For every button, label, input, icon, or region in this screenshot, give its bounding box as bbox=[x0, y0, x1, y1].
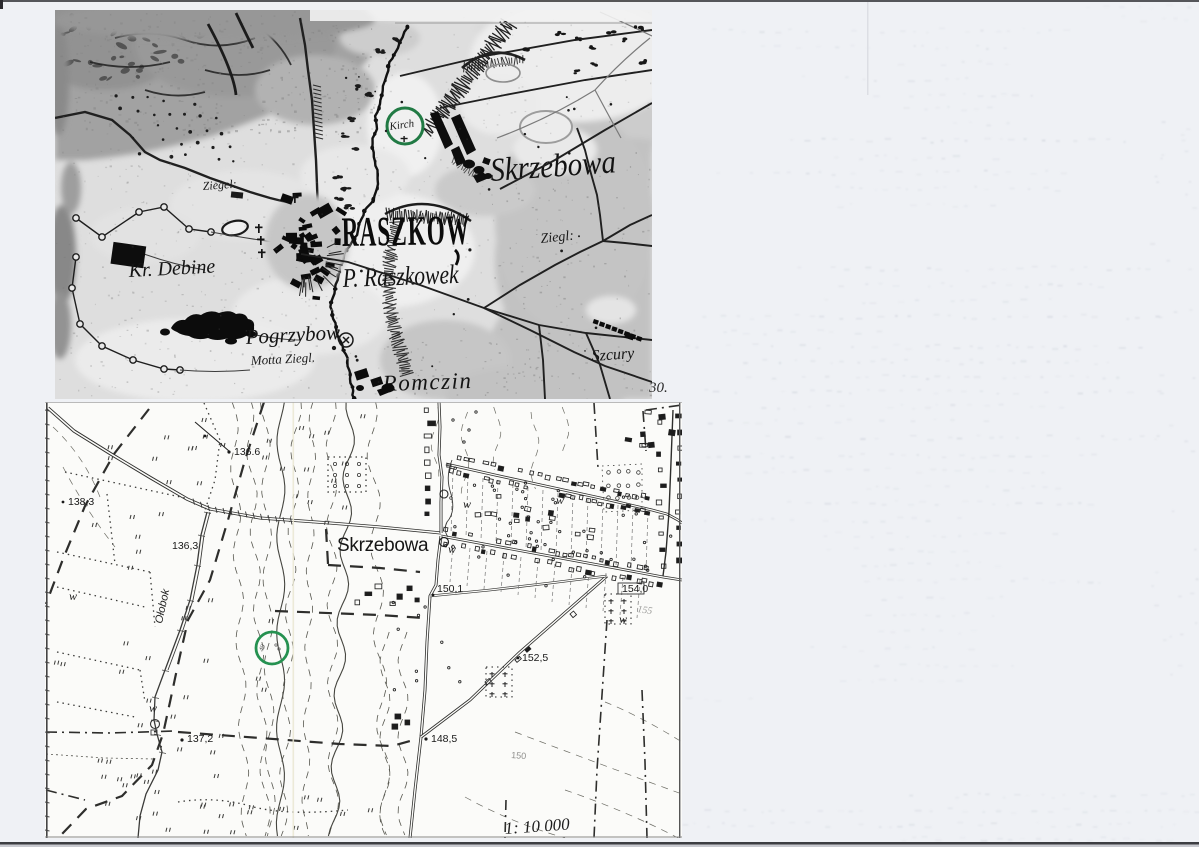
svg-text:Romczin: Romczin bbox=[381, 368, 473, 396]
svg-text:154,0: 154,0 bbox=[622, 583, 648, 595]
svg-text:w: w bbox=[149, 701, 157, 715]
svg-text:w: w bbox=[463, 497, 471, 511]
svg-text:148,5: 148,5 bbox=[431, 733, 457, 745]
svg-text:150: 150 bbox=[511, 750, 527, 761]
svg-text:Pogrzybow: Pogrzybow bbox=[244, 320, 341, 349]
svg-text:137,2: 137,2 bbox=[187, 733, 213, 745]
svg-text:w: w bbox=[619, 612, 627, 626]
svg-text:155: 155 bbox=[637, 604, 653, 617]
svg-text:Szcury: Szcury bbox=[591, 345, 636, 365]
svg-text:w: w bbox=[69, 589, 77, 603]
svg-text:150,1: 150,1 bbox=[437, 583, 463, 595]
svg-text:RASZKOW: RASZKOW bbox=[341, 208, 470, 256]
svg-text:30.: 30. bbox=[648, 380, 668, 396]
svg-text:Ziegel:: Ziegel: bbox=[202, 177, 237, 193]
svg-text:w: w bbox=[448, 542, 456, 556]
svg-text:136.6: 136.6 bbox=[234, 446, 260, 458]
svg-text:Skrzebowa: Skrzebowa bbox=[337, 535, 429, 556]
svg-text:w: w bbox=[556, 493, 564, 507]
svg-text:136,3: 136,3 bbox=[172, 540, 198, 552]
svg-text:Kr. Debine: Kr. Debine bbox=[127, 255, 216, 282]
svg-text:152,5: 152,5 bbox=[522, 652, 548, 664]
svg-text:138,3: 138,3 bbox=[68, 496, 94, 508]
